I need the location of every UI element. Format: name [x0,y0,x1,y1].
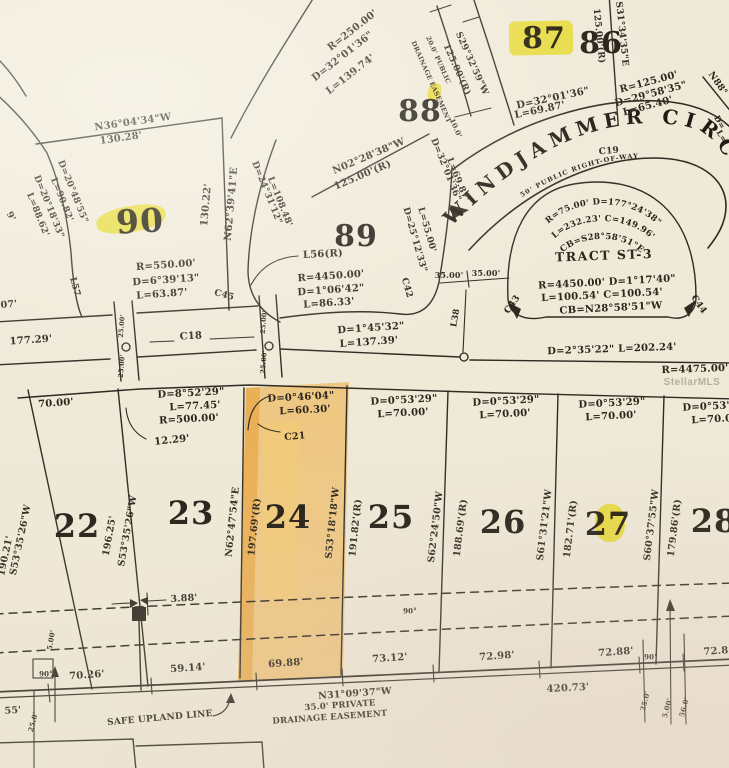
bearing-n62-47: N62°47'54"E [225,486,242,557]
curve-r4450: R=4450.00' [297,270,365,285]
bearing-s53-35-b: S53°35'26"W [117,495,139,568]
label-l56: L56(R) [303,249,343,261]
highlight-lot-87 [509,20,574,55]
curve-d6-39: D=6°39'13" [132,274,200,289]
lot-24: 24 [265,501,312,533]
curve-l137: L=137.39' [339,336,398,350]
label-c21: C21 [284,431,306,442]
dist-5-00-a: 5.00' [46,629,56,650]
highlight-lot-27 [595,504,625,542]
dist-70-00: 70.00' [38,398,74,410]
partial-07: 07' [0,300,17,311]
curve-l86-33: L=86.33' [303,297,355,311]
dist-25-0-b: 25.0' [639,690,651,711]
bearing-s62-24: S62°24'50"W [427,491,445,564]
bearing-s60-37: S60°37'55"W [643,489,661,562]
partial-9: 9' [4,211,17,224]
partial-d: D= [713,114,727,130]
watermark: StellarMLS [664,378,721,388]
dist-56-0: 56.0' [678,696,690,717]
dist-69-88: 69.88' [268,658,304,670]
curve-r550: R=550.00' [136,259,196,273]
dist-130-28: 130.28' [99,131,143,147]
ease-drainage-2: DRAINAGE EASEMENT [272,710,387,727]
partial-55: 55' [4,706,21,717]
angle-90-c: 90° [644,654,658,661]
lot-28: 28 [691,505,729,537]
dist-25-b: 25.00' [118,354,127,378]
curve-l77-45: L=77.45' [169,401,221,414]
label-c19: C19 [598,147,619,158]
label-c45: C45 [213,289,235,303]
lot-26: 26 [480,506,527,538]
dist-25-d: 25.00' [260,350,269,374]
dist-420-73: 420.73' [546,683,589,695]
curve-d8-52: D=8°52'29" [157,387,225,400]
label-l38: L38 [450,308,462,328]
dist-73-12: 73.12' [372,653,408,665]
dist-177-29: 177.29' [9,335,52,348]
dist-10-0: 10.0' [449,117,464,138]
curve-l70-d: L=70.00' [691,414,729,427]
dist-72-88: 72.88' [598,647,634,659]
dist-191-82: 191.82'(R) [348,499,364,558]
dist-3-88: 3.88' [170,594,198,605]
dist-188-69: 188.69'(R) [453,499,470,558]
dist-5-00-b: 5.00' [661,697,673,718]
dist-179-86: 179.86'(R) [667,499,684,558]
curve-r500: R=500.00' [159,413,219,426]
curve-d1-06: D=1°06'42" [297,284,365,299]
lot-25: 25 [368,501,415,533]
bearing-n62-39: N62°39'41"E [224,167,240,242]
label-l57: L57 [67,276,81,297]
curve-d0-53-d: D=0°53'29" [682,400,729,413]
map-annotations: N36°04'34"W130.28'D=20°48'55"L=90.82'D=2… [0,0,729,768]
angle-90-a: 90° [403,608,417,615]
dist-72-8-partial: 72.8 [703,646,729,658]
dist-25-0-a: 25.0' [27,711,39,732]
dist-72-98: 72.98' [479,651,515,663]
tract-name: TRACT ST-3 [555,248,654,264]
dist-35-a: 35.00' [435,271,464,279]
dist-70-26: 70.26' [69,670,105,682]
dist-182-71: 182.71'(R) [563,500,580,559]
label-c43: C43 [503,294,522,316]
plat-map: WINDJAMMER CIRC 50' PUBLIC RIGHT-OF-WAY … [0,0,729,768]
dist-197-69: 197.69'(R) [247,498,263,557]
curve-l60-30: L=60.30' [279,405,331,418]
label-c44: C44 [688,294,707,316]
curve-l70-b: L=70.00' [479,409,531,422]
bearing-n88: N88° [706,71,728,98]
tract-cb: CB=N28°58'51"W [559,301,662,316]
bearing-s53-18: S53°18'18"W [325,487,342,560]
lot-23: 23 [168,497,215,529]
curve-l70-c: L=70.00' [585,411,637,424]
curve-r4475: R=4475.00' [661,364,728,376]
dist-196-25: 196.25' [102,515,118,557]
dist-59-14: 59.14' [170,663,206,675]
dist-25-a: 25.00' [118,314,127,338]
curve-d2-35: D=2°35'22" L=202.24' [547,343,677,358]
lot-22: 22 [54,510,101,542]
dist-12-29: 12.29' [154,434,190,448]
safe-upland: SAFE UPLAND LINE [107,710,213,728]
dist-25-c: 25.00' [260,310,269,334]
label-c18: C18 [180,331,203,342]
curve-l70-a: L=70.00' [377,408,429,421]
angle-90-b: 90° [39,671,53,678]
dist-130-22: 130.22' [200,183,214,226]
label-c42: C42 [399,277,413,299]
bearing-s61-31: S61°31'21"W [536,489,554,562]
curve-l63-87: L=63.87' [136,288,188,302]
dist-35-b: 35.00' [472,269,501,277]
curve-d0-46: D=0°46'04" [267,391,335,404]
partial-l: L= [715,128,728,143]
